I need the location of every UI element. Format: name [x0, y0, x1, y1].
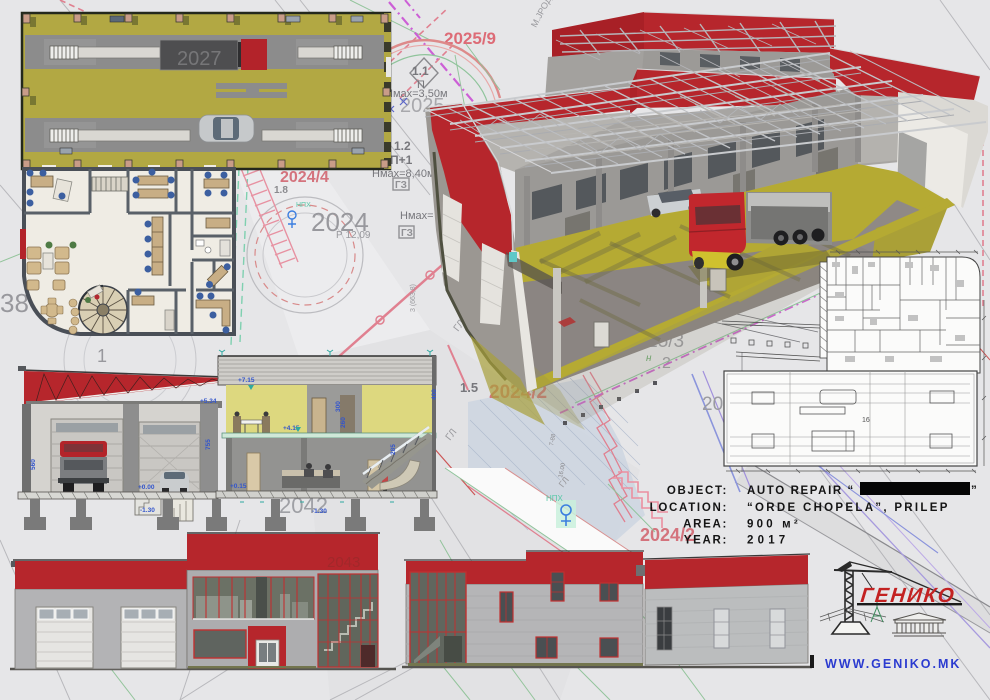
svg-text:OBJECT:: OBJECT: — [667, 485, 728, 497]
svg-text:285: 285 — [390, 444, 397, 455]
svg-text:3 (663,8): 3 (663,8) — [410, 284, 417, 312]
svg-text:16: 16 — [862, 417, 870, 424]
svg-text:755: 755 — [205, 439, 212, 450]
svg-text:LOCATION:: LOCATION: — [650, 502, 728, 514]
svg-text:“ORDE CHOPELA”, PRILEP: “ORDE CHOPELA”, PRILEP — [747, 502, 950, 514]
svg-text:300: 300 — [335, 401, 342, 412]
svg-text:Р 12,09: Р 12,09 — [336, 230, 371, 241]
svg-text:НПХ: НПХ — [546, 494, 564, 503]
svg-text:AUTO REPAIR “: AUTO REPAIR “ — [747, 485, 855, 497]
svg-text:1.8: 1.8 — [274, 185, 288, 196]
svg-text:400: 400 — [431, 389, 438, 400]
svg-text:2027: 2027 — [177, 48, 222, 70]
svg-text:Нмах=: Нмах= — [400, 210, 434, 222]
svg-text:+5.34: +5.34 — [200, 398, 217, 405]
svg-text:Нмах=3,50м: Нмах=3,50м — [385, 88, 448, 100]
svg-text:2017: 2017 — [747, 535, 789, 547]
svg-text:+7.15: +7.15 — [238, 377, 255, 384]
svg-text:1: 1 — [97, 346, 107, 366]
svg-text:1.2: 1.2 — [394, 139, 411, 153]
svg-text:”: ” — [971, 485, 977, 497]
svg-text:НПХ: НПХ — [296, 202, 311, 209]
svg-text:38: 38 — [0, 288, 29, 318]
svg-text:+0.00: +0.00 — [138, 484, 155, 491]
svg-text:1.5: 1.5 — [460, 380, 478, 395]
svg-text:WWW.GENIKO.MK: WWW.GENIKO.MK — [825, 657, 961, 671]
svg-text:260: 260 — [340, 417, 347, 428]
svg-text:2024/4: 2024/4 — [280, 169, 329, 186]
svg-text:2043: 2043 — [327, 554, 360, 571]
svg-text:AREA:: AREA: — [683, 519, 728, 531]
svg-text:YEAR:: YEAR: — [684, 535, 728, 547]
svg-text:П+1: П+1 — [390, 153, 413, 167]
svg-text:+0.15: +0.15 — [230, 483, 247, 490]
svg-text:900 м²: 900 м² — [747, 519, 801, 531]
svg-text:ГЗ: ГЗ — [395, 180, 407, 191]
svg-text:-1.30: -1.30 — [140, 507, 155, 514]
svg-text:1.1: 1.1 — [412, 64, 429, 78]
svg-text:ГЗ: ГЗ — [401, 228, 413, 239]
svg-text:560: 560 — [30, 459, 37, 470]
svg-text:-1.30: -1.30 — [312, 508, 327, 515]
